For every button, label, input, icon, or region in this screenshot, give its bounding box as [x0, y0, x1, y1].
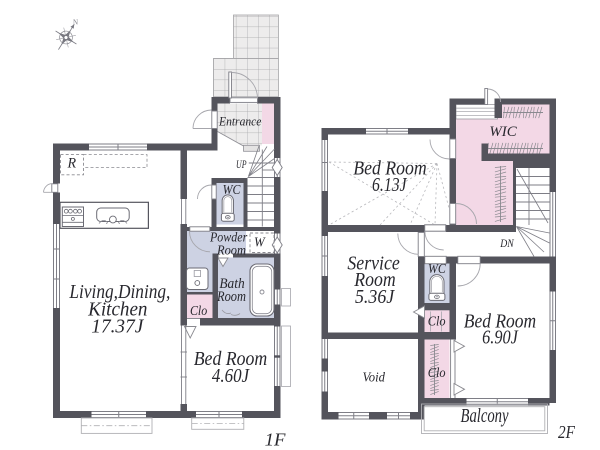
- svg-text:UP: UP: [236, 159, 247, 171]
- svg-text:Clo: Clo: [190, 304, 207, 319]
- svg-text:WIC: WIC: [489, 124, 517, 140]
- svg-text:2F: 2F: [558, 422, 576, 442]
- svg-text:DN: DN: [499, 238, 514, 250]
- svg-text:R: R: [67, 156, 77, 172]
- svg-text:6.13J: 6.13J: [372, 174, 407, 196]
- svg-text:Balcony: Balcony: [461, 405, 509, 427]
- svg-text:W: W: [254, 236, 266, 251]
- svg-text:Clo: Clo: [428, 314, 446, 329]
- svg-text:Room: Room: [216, 244, 246, 259]
- svg-text:4.60J: 4.60J: [212, 365, 250, 387]
- svg-text:Entrance: Entrance: [218, 113, 261, 128]
- svg-text:Clo: Clo: [428, 366, 446, 381]
- svg-text:N: N: [73, 19, 78, 27]
- svg-text:Void: Void: [362, 370, 385, 385]
- svg-text:17.37J: 17.37J: [91, 316, 144, 338]
- svg-text:5.36J: 5.36J: [355, 286, 395, 308]
- svg-text:6.90J: 6.90J: [482, 327, 519, 349]
- svg-text:1F: 1F: [265, 429, 287, 449]
- svg-text:Room: Room: [216, 289, 246, 305]
